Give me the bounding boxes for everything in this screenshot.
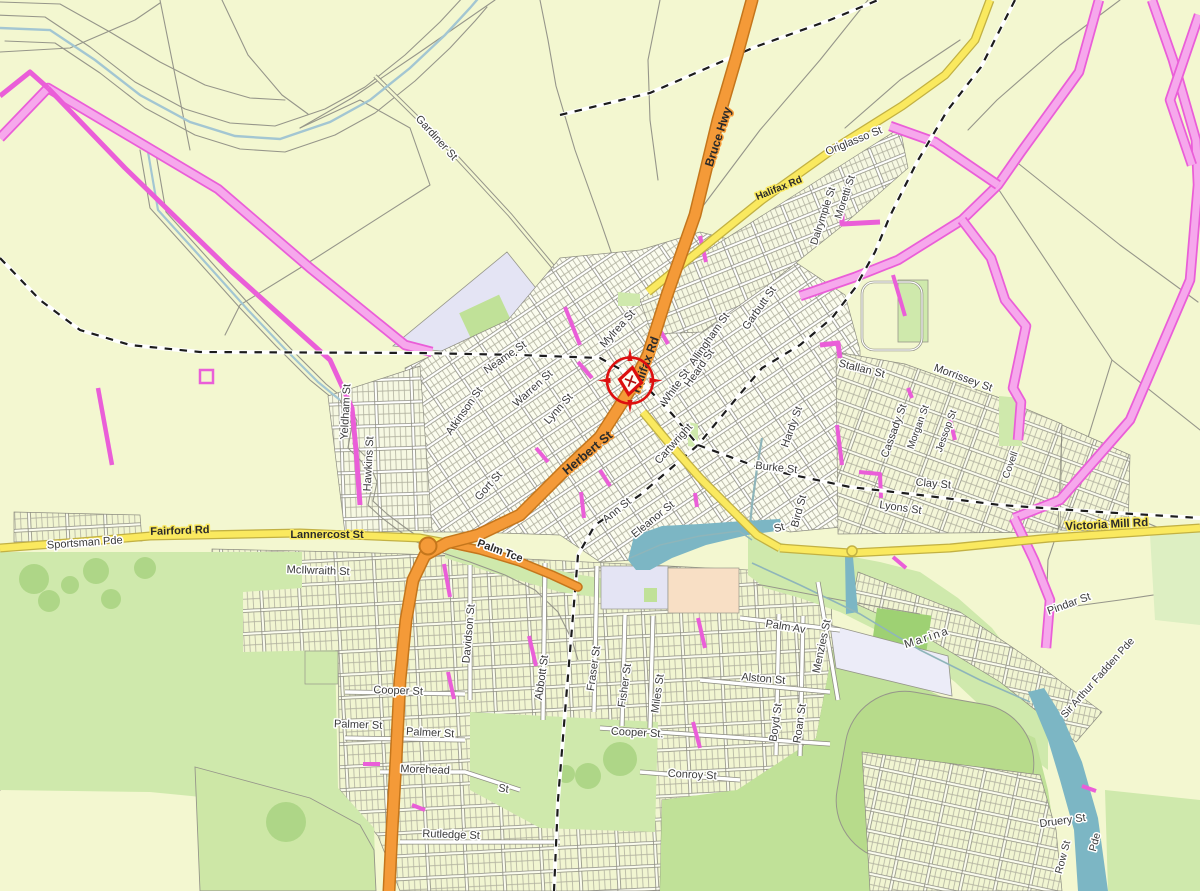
svg-text:Rutledge St: Rutledge St [422, 828, 480, 842]
svg-text:Fairford Rd: Fairford Rd [150, 524, 210, 538]
svg-text:St: St [497, 782, 509, 795]
svg-text:Palmer St: Palmer St [406, 726, 455, 741]
svg-text:Palmer St: Palmer St [334, 718, 383, 732]
svg-text:Morehead: Morehead [400, 763, 450, 777]
svg-text:Conroy St: Conroy St [667, 768, 716, 783]
svg-text:Cooper St: Cooper St [373, 684, 423, 698]
svg-text:McIlwraith St: McIlwraith St [286, 564, 349, 578]
svg-text:Lannercost St: Lannercost St [290, 529, 364, 541]
